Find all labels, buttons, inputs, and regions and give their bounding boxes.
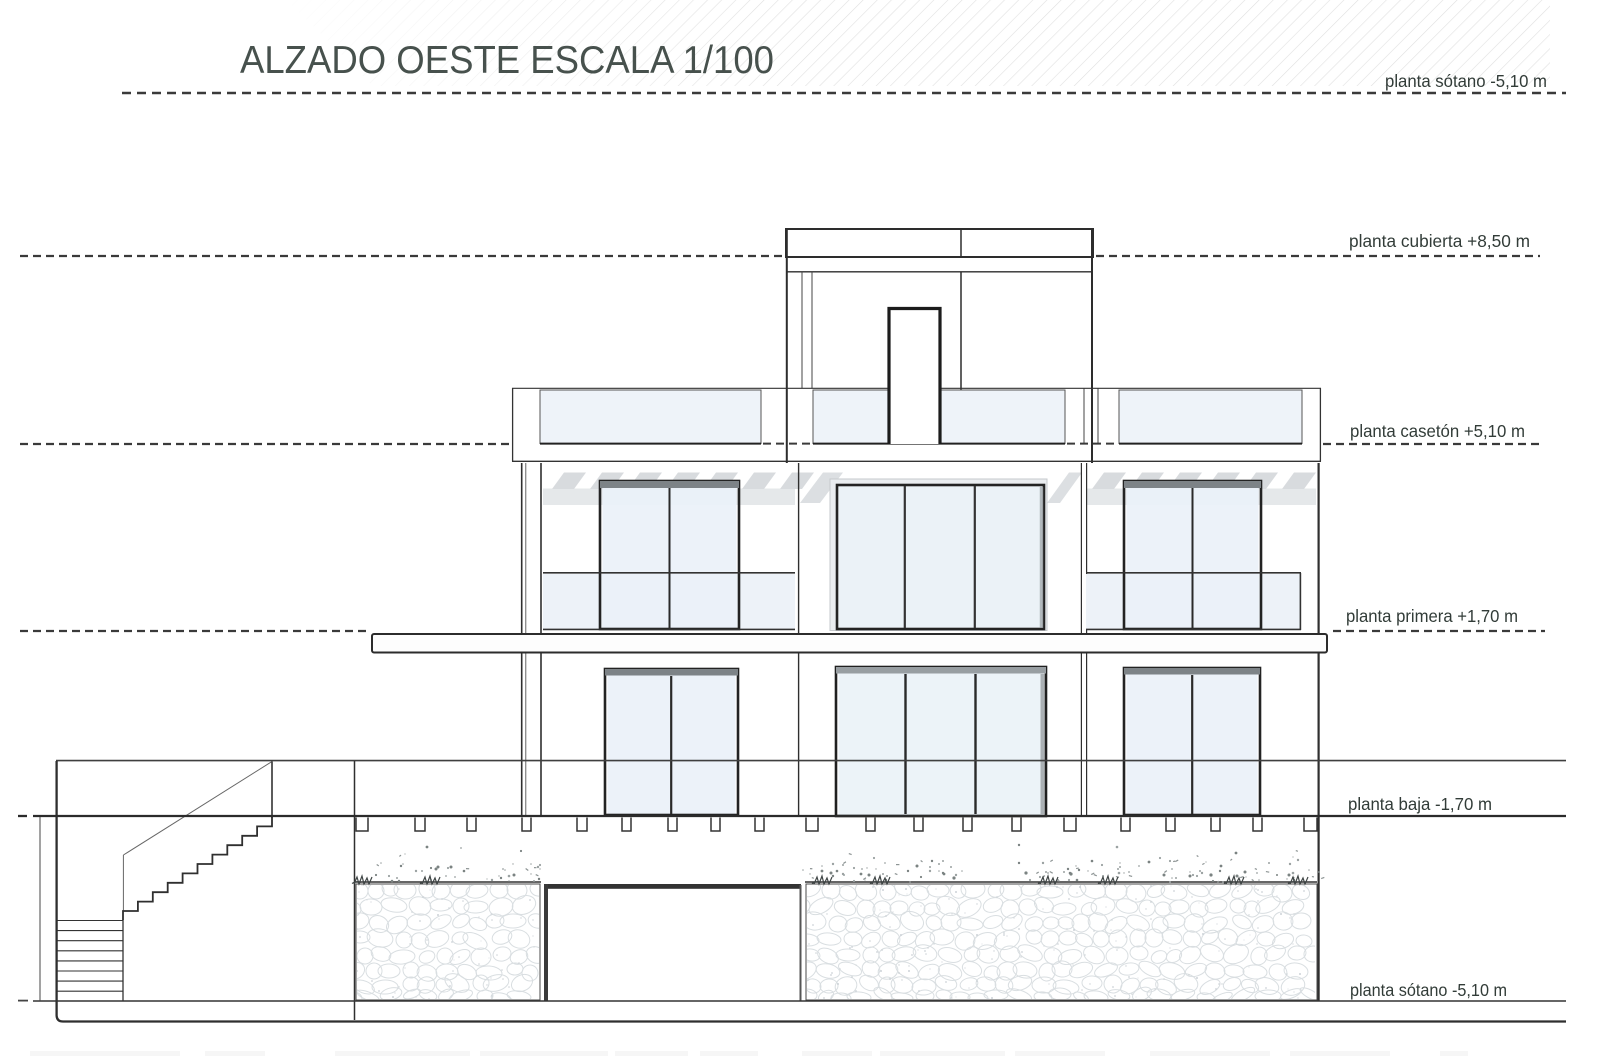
svg-text:planta casetón +5,10 m: planta casetón +5,10 m: [1350, 421, 1525, 441]
svg-text:planta baja -1,70 m: planta baja -1,70 m: [1348, 794, 1492, 814]
svg-text:planta primera +1,70 m: planta primera +1,70 m: [1346, 606, 1518, 626]
svg-text:planta sótano -5,10 m: planta sótano -5,10 m: [1350, 980, 1507, 1000]
svg-text:ALZADO OESTE ESCALA 1/100: ALZADO OESTE ESCALA 1/100: [240, 39, 774, 82]
svg-text:planta cubierta +8,50 m: planta cubierta +8,50 m: [1349, 231, 1530, 251]
svg-text:planta sótano -5,10 m: planta sótano -5,10 m: [1385, 71, 1547, 91]
